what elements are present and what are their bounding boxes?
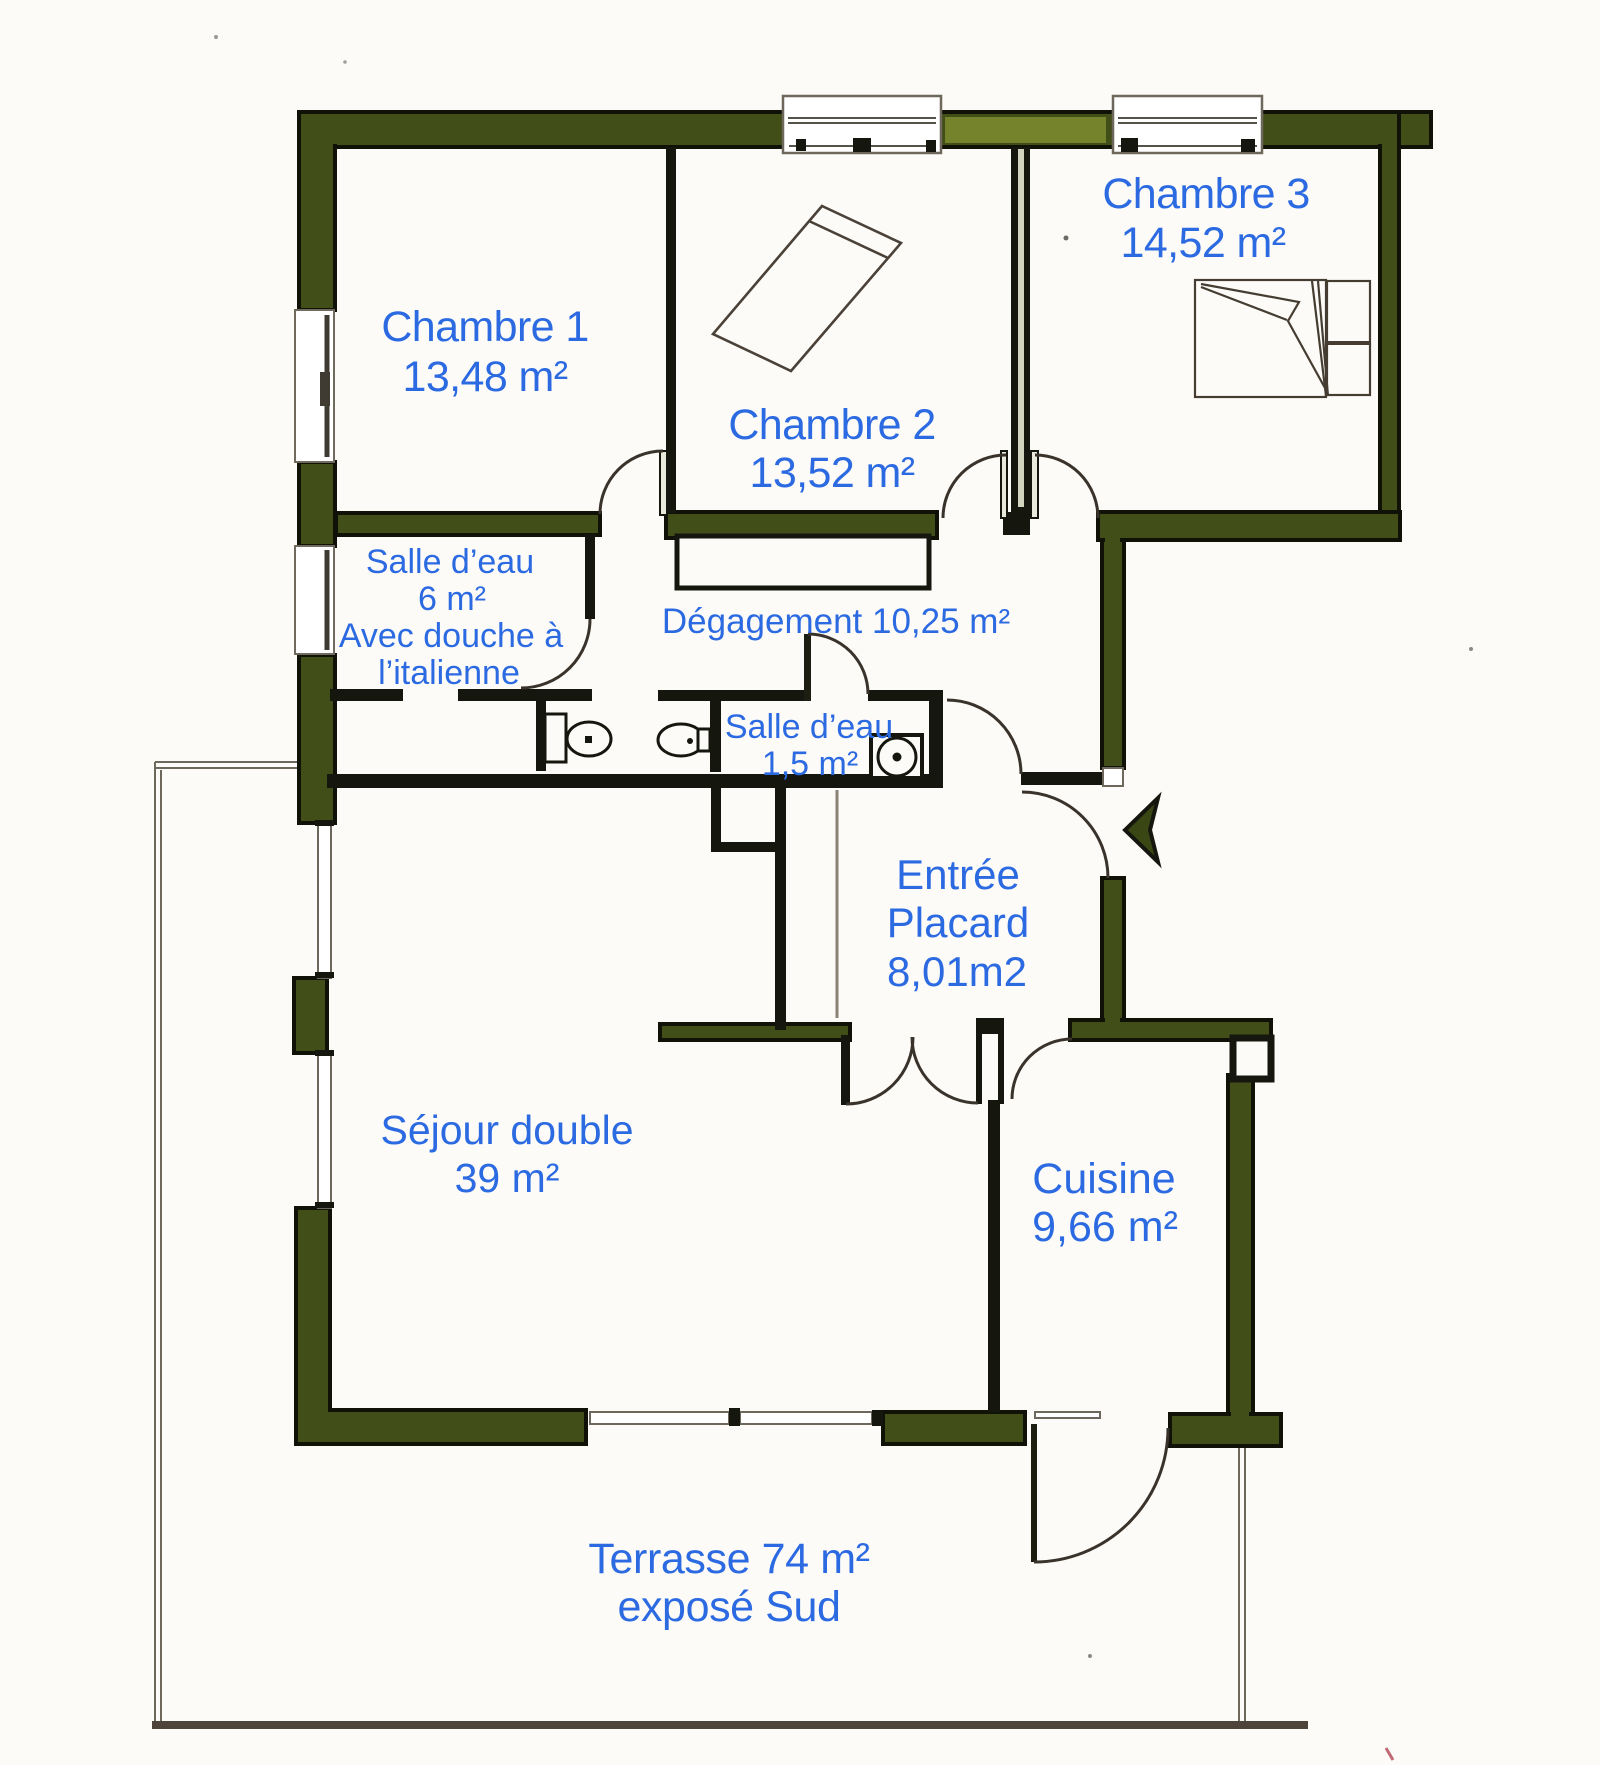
svg-text:Chambre 3: Chambre 3 bbox=[1102, 170, 1309, 218]
svg-text:Chambre 2: Chambre 2 bbox=[728, 401, 935, 449]
svg-text:14,52 m²: 14,52 m² bbox=[1121, 219, 1286, 267]
svg-text:Cuisine: Cuisine bbox=[1032, 1155, 1175, 1203]
svg-text:13,52 m²: 13,52 m² bbox=[750, 449, 915, 497]
svg-text:9,66 m²: 9,66 m² bbox=[1032, 1203, 1178, 1251]
svg-text:8,01m2: 8,01m2 bbox=[887, 948, 1027, 995]
svg-text:Entrée: Entrée bbox=[896, 851, 1020, 898]
svg-text:l’italienne: l’italienne bbox=[378, 654, 520, 692]
svg-text:1,5 m²: 1,5 m² bbox=[762, 745, 858, 783]
svg-text:exposé Sud: exposé Sud bbox=[617, 1583, 840, 1631]
svg-text:Placard: Placard bbox=[887, 899, 1029, 946]
svg-text:Salle d’eau: Salle d’eau bbox=[725, 708, 893, 746]
svg-text:13,48 m²: 13,48 m² bbox=[403, 353, 568, 401]
svg-text:39 m²: 39 m² bbox=[455, 1155, 560, 1201]
svg-text:Séjour double: Séjour double bbox=[380, 1107, 633, 1153]
svg-text:Terrasse 74 m²: Terrasse 74 m² bbox=[588, 1535, 869, 1583]
svg-text:6 m²: 6 m² bbox=[418, 580, 486, 618]
svg-text:Salle d’eau: Salle d’eau bbox=[366, 543, 534, 581]
svg-text:Avec douche à: Avec douche à bbox=[339, 617, 563, 655]
svg-text:Chambre 1: Chambre 1 bbox=[381, 303, 588, 351]
svg-text:Dégagement 10,25 m²: Dégagement 10,25 m² bbox=[662, 602, 1010, 641]
